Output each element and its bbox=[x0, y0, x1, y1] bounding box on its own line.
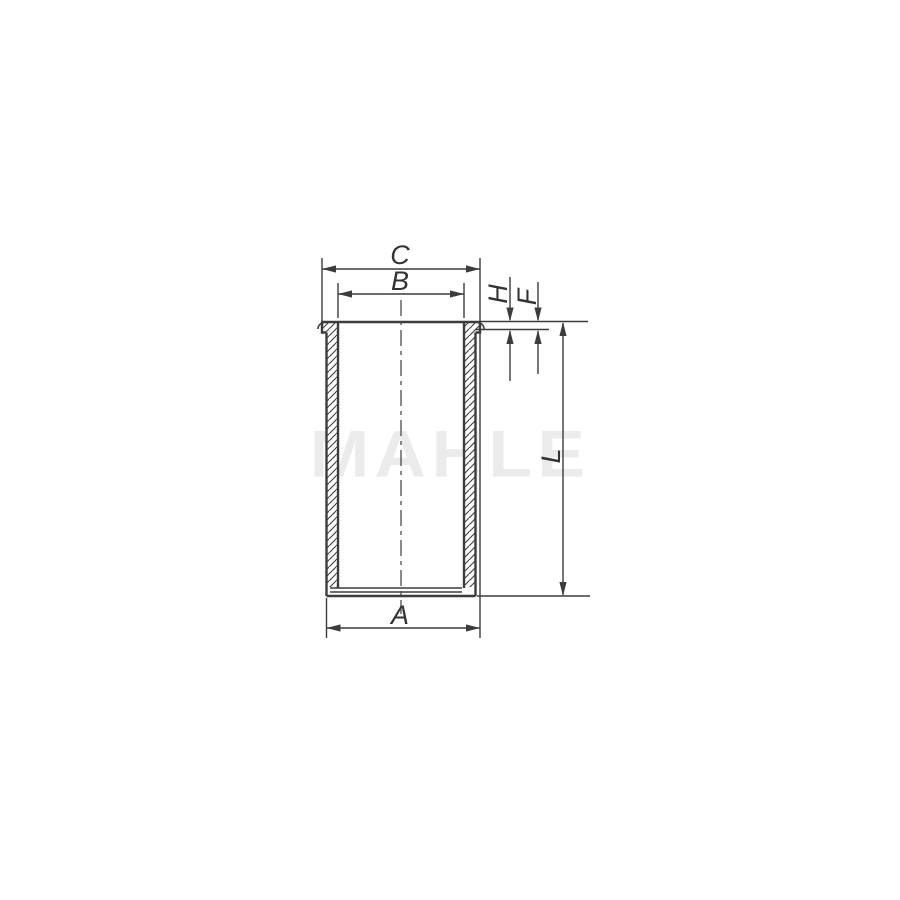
dim-label-h: H bbox=[483, 284, 513, 304]
arrow-f-down bbox=[534, 308, 541, 322]
left-wall-hatch bbox=[322, 323, 338, 587]
dim-label-l: L bbox=[536, 448, 566, 463]
arrow-l-up bbox=[559, 322, 566, 336]
arrow-c-right bbox=[466, 265, 480, 272]
arrow-f-up bbox=[534, 330, 541, 344]
arrow-l-down bbox=[559, 582, 566, 596]
dim-label-b: B bbox=[391, 266, 409, 296]
arrow-a-left bbox=[327, 624, 341, 631]
dim-label-a: A bbox=[389, 600, 409, 630]
dim-label-f: F bbox=[512, 287, 542, 305]
arrowheads bbox=[322, 265, 567, 631]
extension-lines bbox=[322, 258, 590, 638]
dimension-labels: C B A H F L bbox=[389, 240, 566, 630]
drawing-canvas: MAHLE bbox=[0, 0, 900, 900]
arrow-b-left bbox=[338, 290, 352, 297]
arrow-b-right bbox=[450, 290, 464, 297]
right-wall-hatch bbox=[464, 323, 480, 587]
arrow-h-down bbox=[506, 308, 513, 322]
arrow-a-right bbox=[466, 624, 480, 631]
arrow-h-up bbox=[506, 330, 513, 344]
cylinder-liner-drawing: C B A H F L bbox=[0, 0, 900, 900]
bottom-rim-detail bbox=[330, 588, 462, 592]
arrow-c-left bbox=[322, 265, 336, 272]
